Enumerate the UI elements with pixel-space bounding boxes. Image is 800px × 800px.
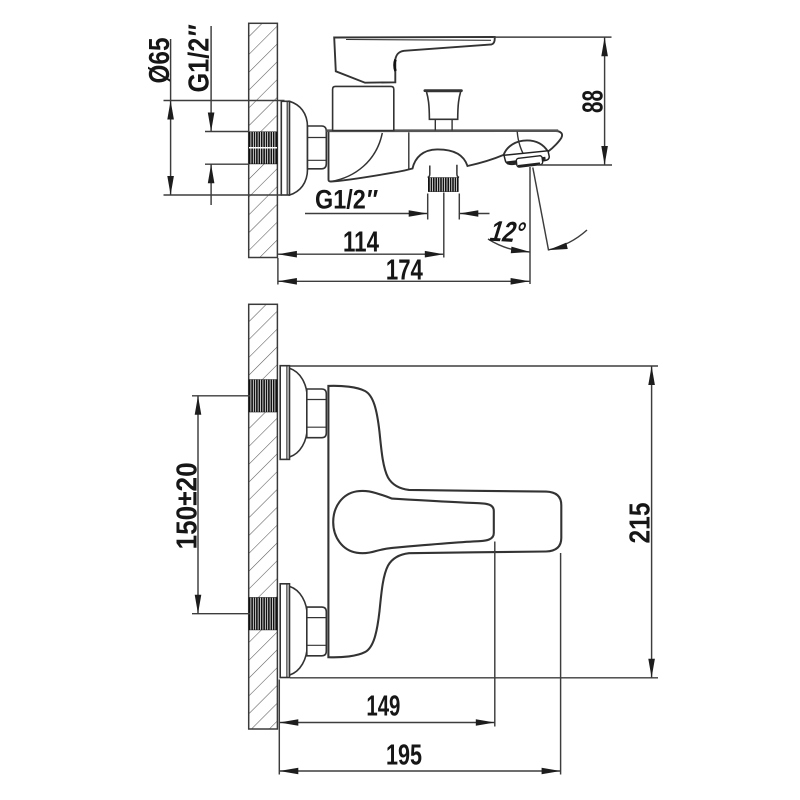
svg-text:G1/2″: G1/2″ (315, 185, 378, 215)
svg-text:174: 174 (386, 255, 423, 287)
svg-text:114: 114 (343, 227, 379, 259)
svg-text:149: 149 (366, 691, 400, 723)
svg-text:88: 88 (578, 90, 610, 113)
svg-text:G1/2″: G1/2″ (184, 25, 216, 93)
svg-text:Ø65: Ø65 (144, 38, 176, 84)
svg-text:215: 215 (625, 503, 657, 544)
svg-text:195: 195 (386, 740, 422, 772)
svg-text:150±20: 150±20 (172, 462, 204, 549)
